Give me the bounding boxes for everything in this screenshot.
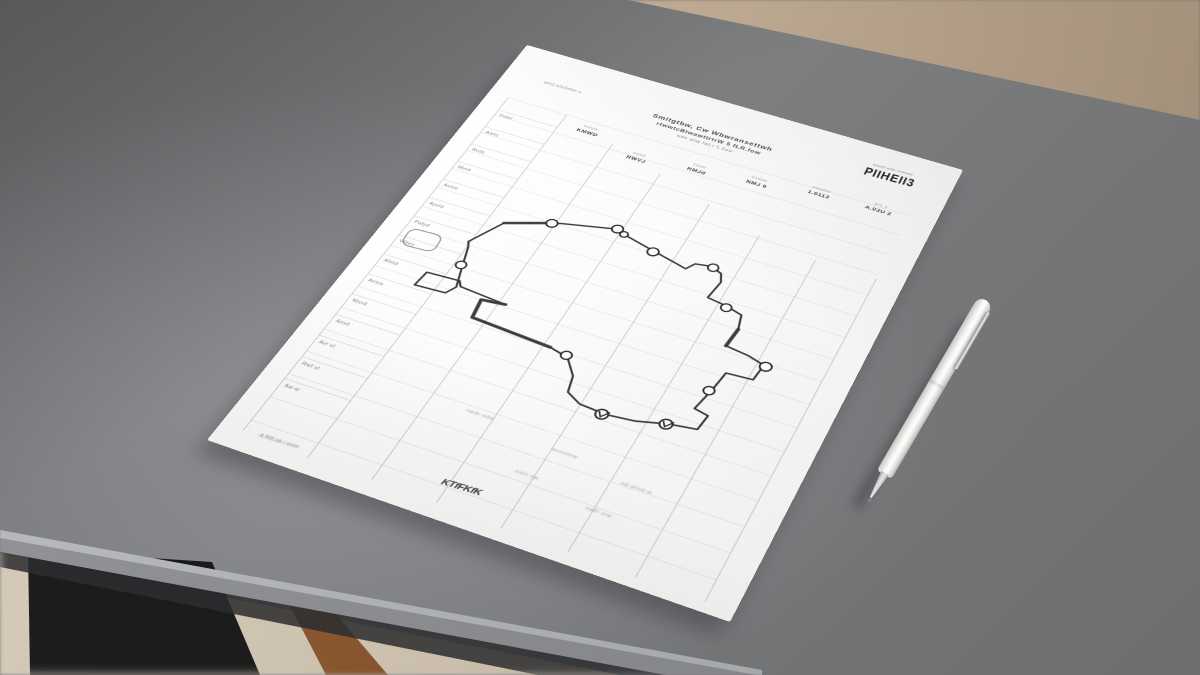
diagram-nodes: [391, 192, 818, 459]
pen-tip-ball: [867, 497, 873, 503]
photo-scene: wnd-ataSdwr-c Smitgtbw, Cw Wbwransettwh …: [0, 0, 1200, 675]
